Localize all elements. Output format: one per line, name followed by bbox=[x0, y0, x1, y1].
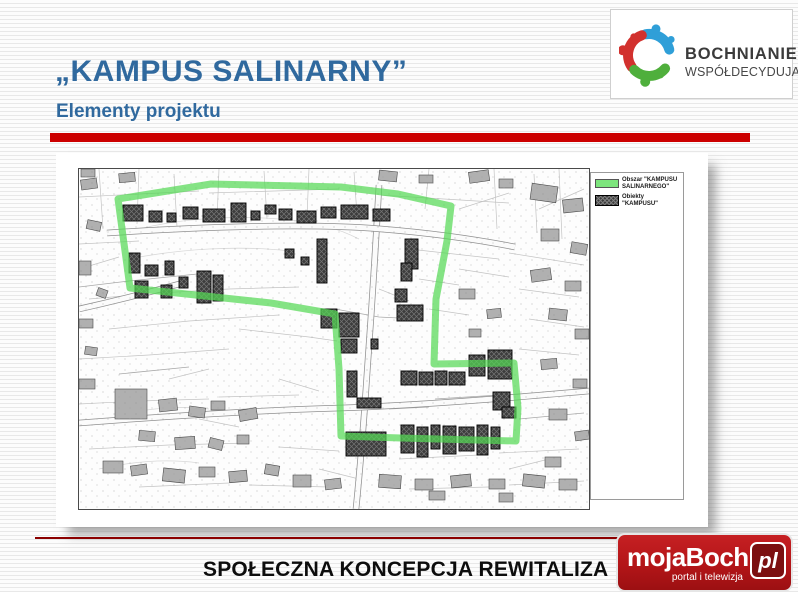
legend-item-area: Obszar "KAMPUSU SALINARNEGO" bbox=[595, 177, 680, 190]
legend-objects-label: Obiekty "KAMPUSU" bbox=[622, 194, 680, 207]
bochnianie-people-circle-icon bbox=[619, 21, 679, 89]
bochnianie-logo-text-line2: WSPÓŁDECYDUJĄ bbox=[685, 65, 798, 79]
bochnianie-logo-text-line1: BOCHNIANIE bbox=[685, 45, 798, 64]
bochnianie-logo: BOCHNIANIE WSPÓŁDECYDUJĄ bbox=[610, 9, 793, 99]
title-accent-bar bbox=[50, 133, 750, 142]
mojabochnia-logo: mojaBochnia pl portal i telewizja bbox=[616, 533, 793, 592]
content-panel: Obszar "KAMPUSU SALINARNEGO" Obiekty "KA… bbox=[56, 153, 708, 527]
map-frame bbox=[78, 168, 590, 510]
footer-title: SPOŁECZNA KONCEPCJA REWITALIZA bbox=[203, 558, 608, 582]
mojabochnia-pl-badge: pl bbox=[750, 542, 786, 579]
slide-background: „KAMPUS SALINARNY” Elementy projektu BOC… bbox=[0, 0, 798, 592]
mojabochnia-tagline: portal i telewizja bbox=[672, 572, 743, 583]
legend-area-label: Obszar "KAMPUSU SALINARNEGO" bbox=[622, 177, 680, 190]
legend-objects-swatch bbox=[595, 195, 619, 206]
legend-area-swatch bbox=[595, 179, 619, 188]
map-legend: Obszar "KAMPUSU SALINARNEGO" Obiekty "KA… bbox=[590, 172, 684, 500]
map-image bbox=[79, 169, 589, 509]
page-subtitle: Elementy projektu bbox=[56, 101, 221, 123]
page-title: „KAMPUS SALINARNY” bbox=[55, 55, 407, 89]
legend-item-objects: Obiekty "KAMPUSU" bbox=[595, 194, 680, 207]
